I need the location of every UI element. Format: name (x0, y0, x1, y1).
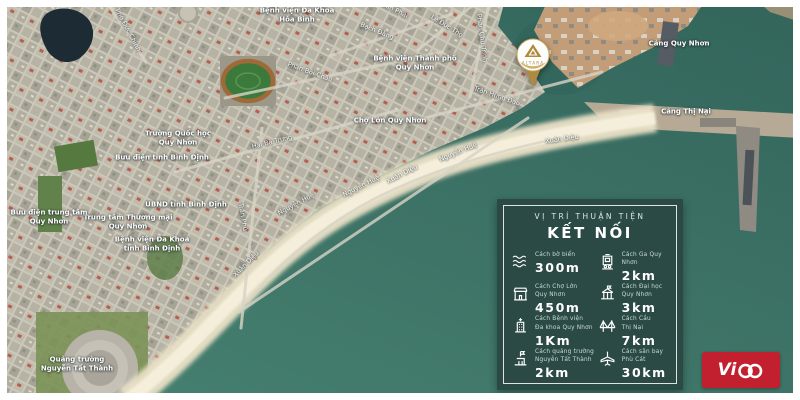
distance-item: Cách sân bayPhù Cát30km (599, 348, 675, 380)
place-label: Bệnh viện Đa Khoatỉnh Bình Định (115, 235, 190, 253)
bridge-icon (599, 317, 616, 334)
distance-item: Cách Đại họcQuy Nhơn3km (599, 283, 675, 315)
distance-label: Cách CầuThị Nại (622, 315, 657, 331)
waves-icon (512, 253, 529, 270)
place-label: Trung tâm Thương mạiQuy Nhơn (83, 213, 172, 231)
distance-value: 450m (535, 300, 581, 315)
market-icon (512, 285, 529, 302)
panel-title: KẾT NỐI (497, 224, 683, 242)
interlocked-co-icon (737, 362, 764, 380)
distance-label: Cách bờ biển (535, 251, 581, 259)
place-label: Chợ Lớn Quy Nhơn (354, 117, 427, 126)
distance-value: 2km (535, 365, 594, 380)
distance-grid: Cách bờ biển300mCách Chợ LớnQuy Nhơn450m… (497, 242, 683, 374)
distance-value: 30km (622, 365, 667, 380)
vico-logo: Vi (702, 352, 780, 388)
place-label: Trường Quốc họcQuy Nhơn (145, 129, 211, 147)
distance-label: Cách quảng trườngNguyễn Tất Thành (535, 348, 594, 364)
distance-item: Cách Ga Quy Nhơn2km (599, 251, 675, 283)
map-canvas: Bệnh viện Đa KhoaHòa BìnhBệnh viện Thành… (0, 0, 800, 400)
distance-label: Cách Chợ LớnQuy Nhơn (535, 283, 581, 299)
panel-subtitle: VỊ TRÍ THUẬN TIỆN (497, 212, 683, 221)
distance-item: Cách Chợ LớnQuy Nhơn450m (512, 283, 595, 315)
distance-value: 3km (622, 300, 663, 315)
distance-label: Cách Ga Quy Nhơn (622, 251, 675, 267)
place-label: Cảng Thị Nại (661, 108, 711, 117)
hospital-icon (512, 317, 529, 334)
place-label: UBND tỉnh Bình Định (145, 201, 227, 210)
pin-brand-label: ALTARA (522, 61, 545, 66)
distance-item: Cách bờ biển300m (512, 251, 595, 283)
distance-label: Cách Bệnh việnĐa khoa Quy Nhơn (535, 315, 593, 331)
distance-value: 300m (535, 260, 581, 275)
connectivity-panel: VỊ TRÍ THUẬN TIỆN KẾT NỐI Cách bờ biển30… (497, 199, 683, 390)
place-label: Cảng Quy Nhơn (649, 40, 710, 49)
distance-value: 1Km (535, 333, 593, 348)
distance-item: Cách Bệnh việnĐa khoa Quy Nhơn1Km (512, 315, 595, 347)
place-label: Bưu điện tỉnh Bình Định (115, 154, 209, 163)
place-label: Bưu điện trung tâmQuy Nhơn (11, 208, 88, 226)
train-icon (599, 253, 616, 270)
distance-value: 7km (622, 333, 657, 348)
distance-item: Cách CầuThị Nại7km (599, 315, 675, 347)
panel-header: VỊ TRÍ THUẬN TIỆN KẾT NỐI (497, 199, 683, 242)
distance-item: Cách quảng trườngNguyễn Tất Thành2km (512, 348, 595, 380)
university-icon (599, 285, 616, 302)
distance-label: Cách sân bayPhù Cát (622, 348, 667, 364)
vico-logo-text: Vi (718, 360, 737, 380)
distance-value: 2km (622, 268, 675, 283)
altara-map-pin: ALTARA (515, 37, 551, 89)
place-label: Bệnh viện Thành phốQuy Nhơn (373, 54, 456, 72)
distance-label: Cách Đại họcQuy Nhơn (622, 283, 663, 299)
place-label: Bệnh viện Đa KhoaHòa Bình (260, 6, 335, 24)
plane-icon (599, 350, 616, 367)
plaza-icon (512, 350, 529, 367)
place-label: Quảng trườngNguyễn Tất Thành (41, 355, 113, 373)
